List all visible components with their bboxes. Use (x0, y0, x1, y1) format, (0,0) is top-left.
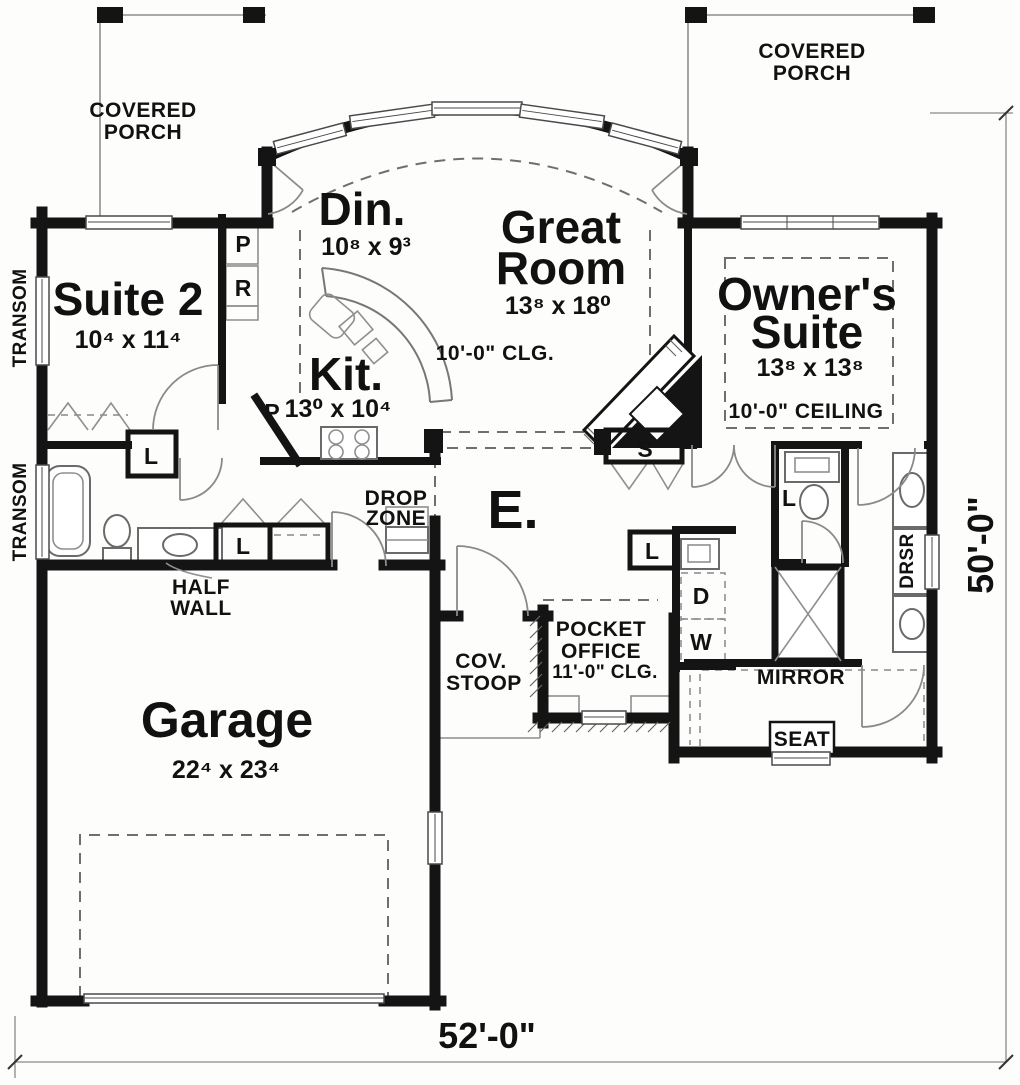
shower (775, 567, 841, 661)
porch-post (685, 7, 707, 23)
owners-suite-double-doors (692, 445, 775, 487)
great-room-ceiling: 10'-0" CLG. (436, 342, 554, 365)
great-room-dims: 13⁸ x 18⁰ (505, 292, 611, 320)
mirror-label: MIRROR (757, 666, 845, 689)
owner-sink-counter (785, 452, 839, 482)
linen-letter: L (645, 538, 659, 564)
pantry-letter: P (235, 231, 250, 257)
owners-suite-ceiling: 10'-0" CEILING (729, 400, 884, 423)
pantry-letter: P (264, 399, 279, 425)
porch-post (913, 7, 935, 23)
porch-left-label: COVERED (89, 99, 196, 122)
floor-plan-sheet: COVERED PORCH COVERED PORCH Suite 2 10⁴ … (0, 0, 1020, 1085)
laundry-tub (681, 539, 719, 569)
pocket-office-label: POCKET (556, 618, 647, 641)
front-door (457, 546, 528, 616)
owners-suite-window (741, 216, 879, 229)
transom-label-lower: TRANSOM (10, 463, 31, 562)
porch-right-door (652, 160, 687, 214)
bow-window-5 (609, 123, 682, 154)
water-closet-door (802, 521, 843, 563)
linen-letter: L (782, 485, 796, 511)
bow-corner-post (680, 148, 698, 166)
half-wall-label: HALF (172, 576, 230, 599)
refrigerator-letter: R (235, 275, 252, 301)
dryer-letter: D (693, 583, 710, 609)
bow-corner-post (258, 148, 276, 166)
bow-window-2 (350, 104, 435, 129)
entry-column (424, 429, 443, 453)
pocket-office-ceiling: 11'-0" CLG. (552, 662, 658, 683)
linen-letter: L (236, 533, 250, 559)
dining-name: Din. (319, 183, 406, 235)
transom-window-lower (36, 465, 49, 559)
floor-plan-drawing: COVERED PORCH COVERED PORCH Suite 2 10⁴ … (0, 0, 1020, 1085)
bow-window-4 (519, 104, 604, 129)
walkin-closet-door (862, 665, 924, 727)
cov-stoop-label: STOOP (446, 672, 522, 695)
office-window (582, 711, 626, 724)
porch-left-label: PORCH (104, 121, 182, 144)
owners-suite-name: Suite (751, 306, 863, 358)
dining-dims: 10⁸ x 9³ (321, 233, 411, 261)
seat-label: SEAT (774, 728, 830, 751)
garage-door (84, 994, 384, 1003)
bow-window-1 (273, 123, 346, 154)
garage-name: Garage (141, 692, 313, 748)
half-wall-label: WALL (170, 597, 231, 620)
kitchen-name: Kit. (309, 348, 383, 400)
kitchen-dims: 13⁰ x 10⁴ (285, 395, 392, 423)
hall-closet (270, 525, 328, 565)
pocket-office-label: OFFICE (561, 640, 641, 663)
entry-column (594, 429, 611, 455)
depth-dimension: 50'-0" (960, 496, 1001, 594)
porch-left-door (268, 160, 303, 214)
dresser-label: DRSR (897, 533, 918, 588)
cov-stoop-label: COV. (455, 650, 506, 673)
transom-window-upper (36, 277, 49, 365)
suite2-door (153, 365, 218, 430)
washer-letter: W (690, 629, 712, 655)
garage-side-window (428, 812, 442, 864)
great-room-name: Room (496, 242, 626, 294)
owner-toilet (800, 485, 828, 519)
toilet (103, 515, 131, 561)
transom-label-upper: TRANSOM (10, 269, 31, 368)
suite2-dims: 10⁴ x 11⁴ (75, 326, 182, 354)
bath-door (180, 458, 222, 500)
owners-suite-dims: 13⁸ x 13⁸ (756, 354, 863, 382)
bow-window-3 (432, 102, 522, 115)
bathtub (46, 466, 90, 556)
linen-letter: L (144, 443, 158, 469)
drop-zone-label: ZONE (366, 507, 426, 530)
porch-right-label: COVERED (758, 40, 865, 63)
suite2-window (86, 216, 172, 229)
porch-post (243, 7, 265, 23)
porch-post (97, 7, 123, 23)
entry-name: E. (487, 480, 538, 540)
width-dimension: 52'-0" (438, 1015, 536, 1056)
porch-right-label: PORCH (773, 62, 851, 85)
suite2-name: Suite 2 (53, 273, 204, 325)
storage-letter: S (637, 436, 652, 462)
seat-window (772, 752, 830, 765)
kitchen-range (321, 427, 377, 459)
garage-dims: 22⁴ x 23⁴ (172, 756, 280, 784)
bath-vanity-sink (138, 528, 222, 562)
dresser-wall-window (925, 535, 939, 589)
